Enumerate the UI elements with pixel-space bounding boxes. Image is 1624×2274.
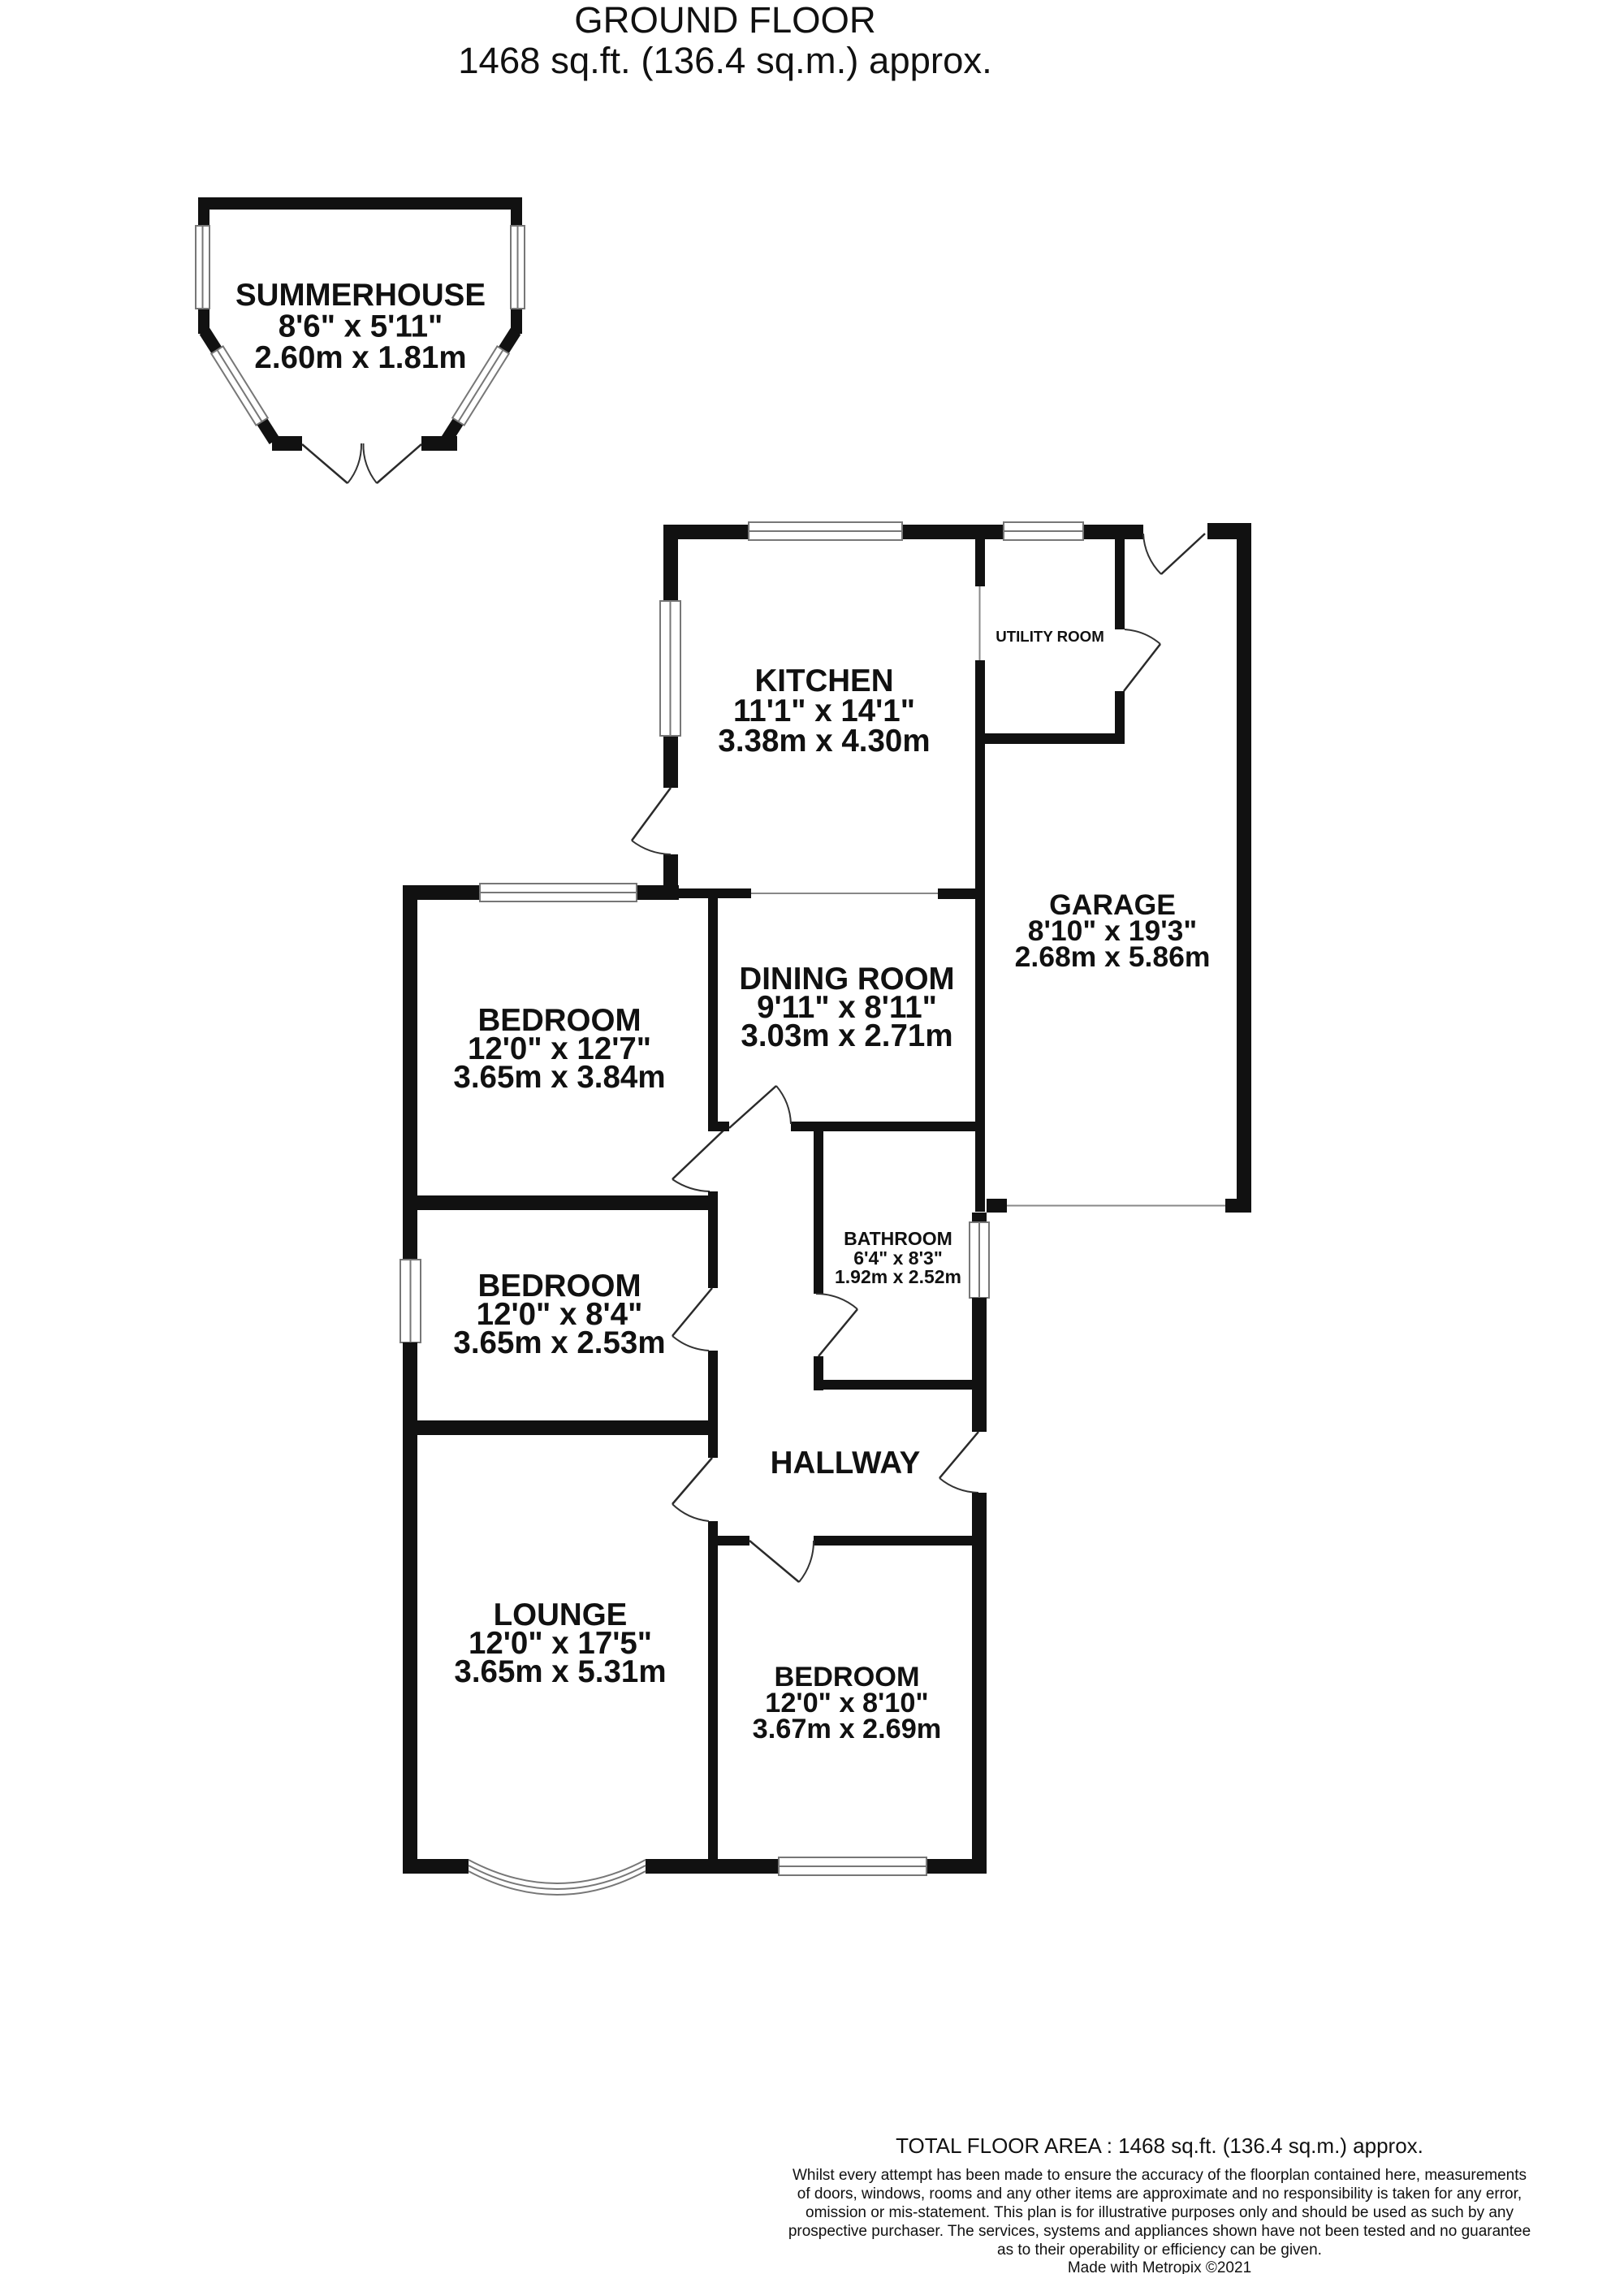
svg-text:HALLWAY: HALLWAY xyxy=(771,1446,921,1481)
svg-text:3.38m x 4.30m: 3.38m x 4.30m xyxy=(718,724,930,759)
svg-text:1468 sq.ft. (136.4 sq.m.) appr: 1468 sq.ft. (136.4 sq.m.) approx. xyxy=(458,40,992,81)
svg-text:Made with Metropix ©2021: Made with Metropix ©2021 xyxy=(1068,2259,1251,2274)
svg-text:3.67m x 2.69m: 3.67m x 2.69m xyxy=(753,1714,942,1744)
svg-text:BATHROOM: BATHROOM xyxy=(844,1228,952,1249)
svg-text:UTILITY ROOM: UTILITY ROOM xyxy=(996,628,1104,645)
svg-text:3.03m x 2.71m: 3.03m x 2.71m xyxy=(741,1018,952,1053)
svg-text:prospective purchaser. The ser: prospective purchaser. The services, sys… xyxy=(788,2223,1531,2240)
svg-text:SUMMERHOUSE: SUMMERHOUSE xyxy=(235,278,486,313)
svg-text:2.60m x 1.81m: 2.60m x 1.81m xyxy=(254,340,466,375)
svg-text:as to their operability or eff: as to their operability or efficiency ca… xyxy=(997,2242,1322,2259)
svg-text:Whilst every attempt has been: Whilst every attempt has been made to en… xyxy=(793,2167,1527,2184)
svg-text:3.65m x 2.53m: 3.65m x 2.53m xyxy=(453,1325,665,1360)
svg-text:1.92m x 2.52m: 1.92m x 2.52m xyxy=(835,1266,961,1287)
svg-text:3.65m x 3.84m: 3.65m x 3.84m xyxy=(453,1060,665,1095)
svg-text:8'6" x 5'11": 8'6" x 5'11" xyxy=(279,309,443,344)
svg-text:2.68m x 5.86m: 2.68m x 5.86m xyxy=(1015,940,1211,973)
svg-text:3.65m x 5.31m: 3.65m x 5.31m xyxy=(454,1654,666,1689)
svg-text:TOTAL FLOOR AREA : 1468 sq.ft.: TOTAL FLOOR AREA : 1468 sq.ft. (136.4 sq… xyxy=(896,2133,1423,2158)
svg-text:GROUND FLOOR: GROUND FLOOR xyxy=(574,0,876,41)
svg-text:omission or mis-statement. Thi: omission or mis-statement. This plan is … xyxy=(806,2204,1514,2221)
svg-text:of doors, windows, rooms and a: of doors, windows, rooms and any other i… xyxy=(797,2185,1522,2203)
